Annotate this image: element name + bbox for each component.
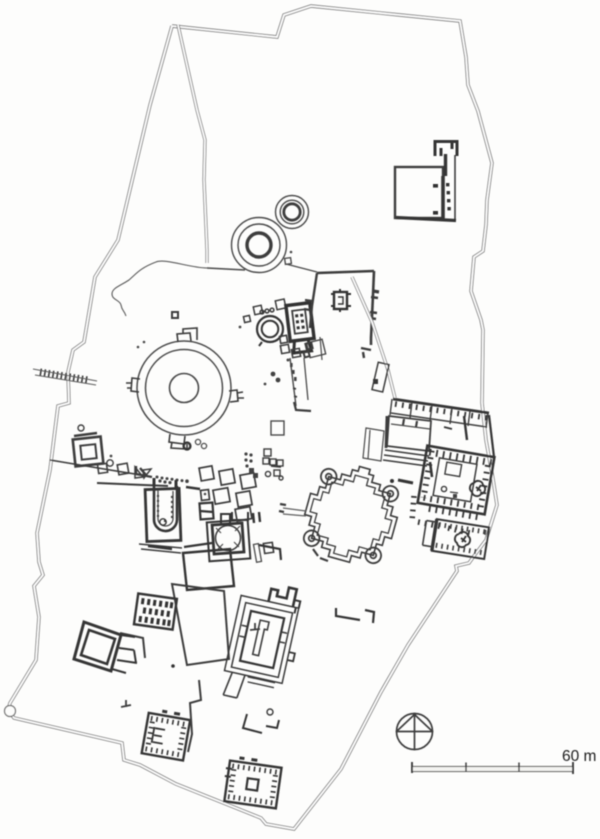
svg-text:60 m: 60 m xyxy=(562,748,596,765)
